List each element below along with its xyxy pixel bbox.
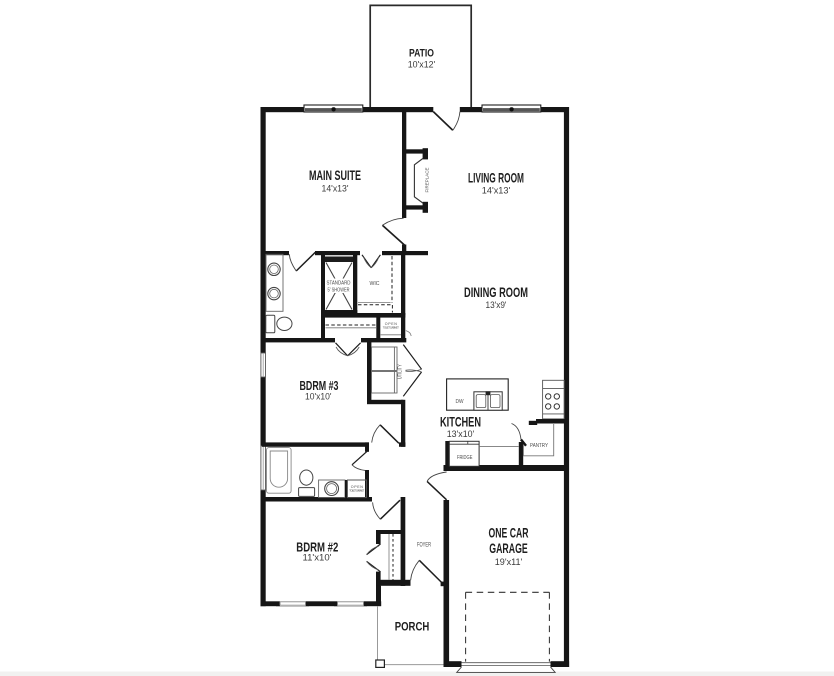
svg-text:PANTRY: PANTRY [530,443,548,449]
svg-text:11'x10': 11'x10' [303,553,332,563]
svg-text:5' SHOWER: 5' SHOWER [328,287,350,293]
svg-text:DINING ROOM: DINING ROOM [464,285,528,300]
svg-text:PATIO: PATIO [409,47,434,59]
svg-text:FIREPLACE: FIREPLACE [424,167,429,192]
svg-text:GARAGE: GARAGE [489,541,528,556]
svg-text:OPEN: OPEN [385,322,397,326]
svg-text:KITCHEN: KITCHEN [440,415,481,430]
svg-text:WIC: WIC [370,281,380,287]
svg-text:STANDARD: STANDARD [327,281,351,287]
svg-text:13'x10': 13'x10' [447,429,475,439]
svg-text:MAIN SUITE: MAIN SUITE [309,168,361,183]
svg-text:FRIDGE: FRIDGE [457,455,473,461]
svg-text:14'x13': 14'x13' [322,183,349,193]
svg-text:TOILET CABINET: TOILET CABINET [349,489,364,493]
svg-text:FOYER: FOYER [417,541,431,548]
svg-text:PORCH: PORCH [395,620,430,634]
svg-text:UTILITY: UTILITY [398,364,404,379]
svg-text:DW: DW [456,399,464,405]
svg-text:TOILET CABINET: TOILET CABINET [383,326,399,330]
svg-text:10'x10': 10'x10' [305,391,332,401]
svg-text:14'x13': 14'x13' [482,185,511,195]
svg-text:ONE CAR: ONE CAR [489,526,529,541]
svg-text:13'x9': 13'x9' [486,300,507,310]
svg-text:19'x11': 19'x11' [495,557,523,567]
svg-text:LIVING ROOM: LIVING ROOM [468,171,524,186]
svg-text:10'x12': 10'x12' [408,60,436,70]
svg-text:OPEN: OPEN [351,485,363,489]
